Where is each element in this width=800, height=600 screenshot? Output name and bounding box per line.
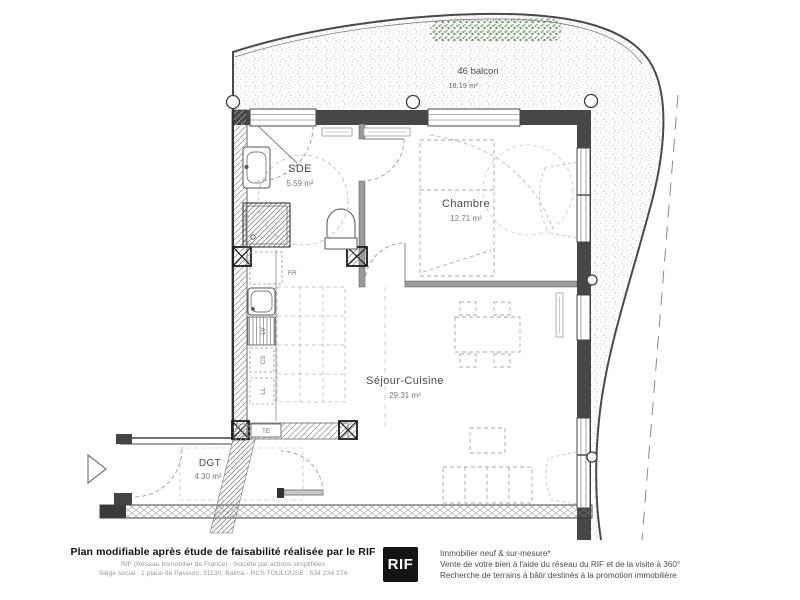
window-right-chambre (577, 148, 590, 242)
cooktop: CS (250, 348, 274, 372)
fridge (250, 252, 282, 284)
balcony-terrace (233, 14, 663, 540)
sejour-label: Séjour-Cuisine (366, 375, 444, 387)
electrical-panel: TE (251, 424, 281, 437)
footer-company-line: RIF (Réseau Immobilier de France) - Soci… (58, 560, 388, 569)
kitchen-sink (248, 288, 275, 315)
footer-service-line-3: Recherche de terrains à bâtir destinés à… (440, 570, 740, 581)
sde-label: SDE (288, 163, 312, 175)
dgt-area: 4.30 m² (194, 472, 221, 481)
doors (134, 126, 577, 504)
cooktop-label: CS (260, 355, 267, 365)
dishwasher: LV (248, 317, 275, 345)
footer-left-block: Plan modifiable après étude de faisabili… (58, 546, 388, 578)
fridge-label: FR (288, 270, 297, 277)
toilet (325, 209, 357, 249)
entrance-arrow-icon (88, 455, 106, 483)
sde-area: 5.59 m² (286, 179, 313, 188)
dining-table (455, 302, 520, 367)
washing-machine-label: LL (260, 387, 267, 395)
bathroom-sink (243, 147, 270, 188)
sejour-area: 29.31 m² (389, 391, 421, 400)
window-top-chambre (428, 109, 520, 126)
structural-posts (227, 95, 598, 463)
radiators (322, 128, 563, 337)
rif-logo-text: RIF (388, 556, 414, 573)
coffee-table (470, 428, 505, 453)
vegetation-patch (430, 18, 562, 42)
chambre-label: Chambre (442, 198, 490, 210)
dishwasher-label: LV (260, 327, 267, 335)
balcony-label: 46 balcon (457, 66, 498, 77)
chambre-area: 12.71 m² (450, 214, 482, 223)
footer: Plan modifiable après étude de faisabili… (0, 541, 800, 600)
dgt-label: DGT (199, 458, 221, 469)
kitchen-island-zone (277, 287, 345, 402)
rif-logo: RIF (383, 547, 418, 582)
window-right-sejour (577, 295, 590, 340)
floor-plan-drawing: TE FR LV CS LL (0, 0, 800, 545)
sofa (443, 467, 532, 503)
footer-service-line-2: Vente de votre bien à l'aide du réseau d… (440, 559, 740, 570)
window-right-balcony-door (577, 418, 590, 508)
balcony-area: 18.19 m² (448, 81, 478, 90)
footer-service-line-1: Immobilier neuf & sur-mesure* (440, 548, 740, 559)
footer-right-block: Immobilier neuf & sur-mesure* Vente de v… (440, 548, 740, 581)
window-top-sde (250, 109, 316, 126)
electrical-panel-label: TE (262, 429, 270, 435)
washing-machine: LL (250, 378, 274, 404)
footer-title: Plan modifiable après étude de faisabili… (58, 546, 388, 558)
footer-address-line: Siège social : 1 place de Paveurs, 31130… (58, 569, 388, 578)
floor-plan-page: TE FR LV CS LL (0, 0, 800, 600)
